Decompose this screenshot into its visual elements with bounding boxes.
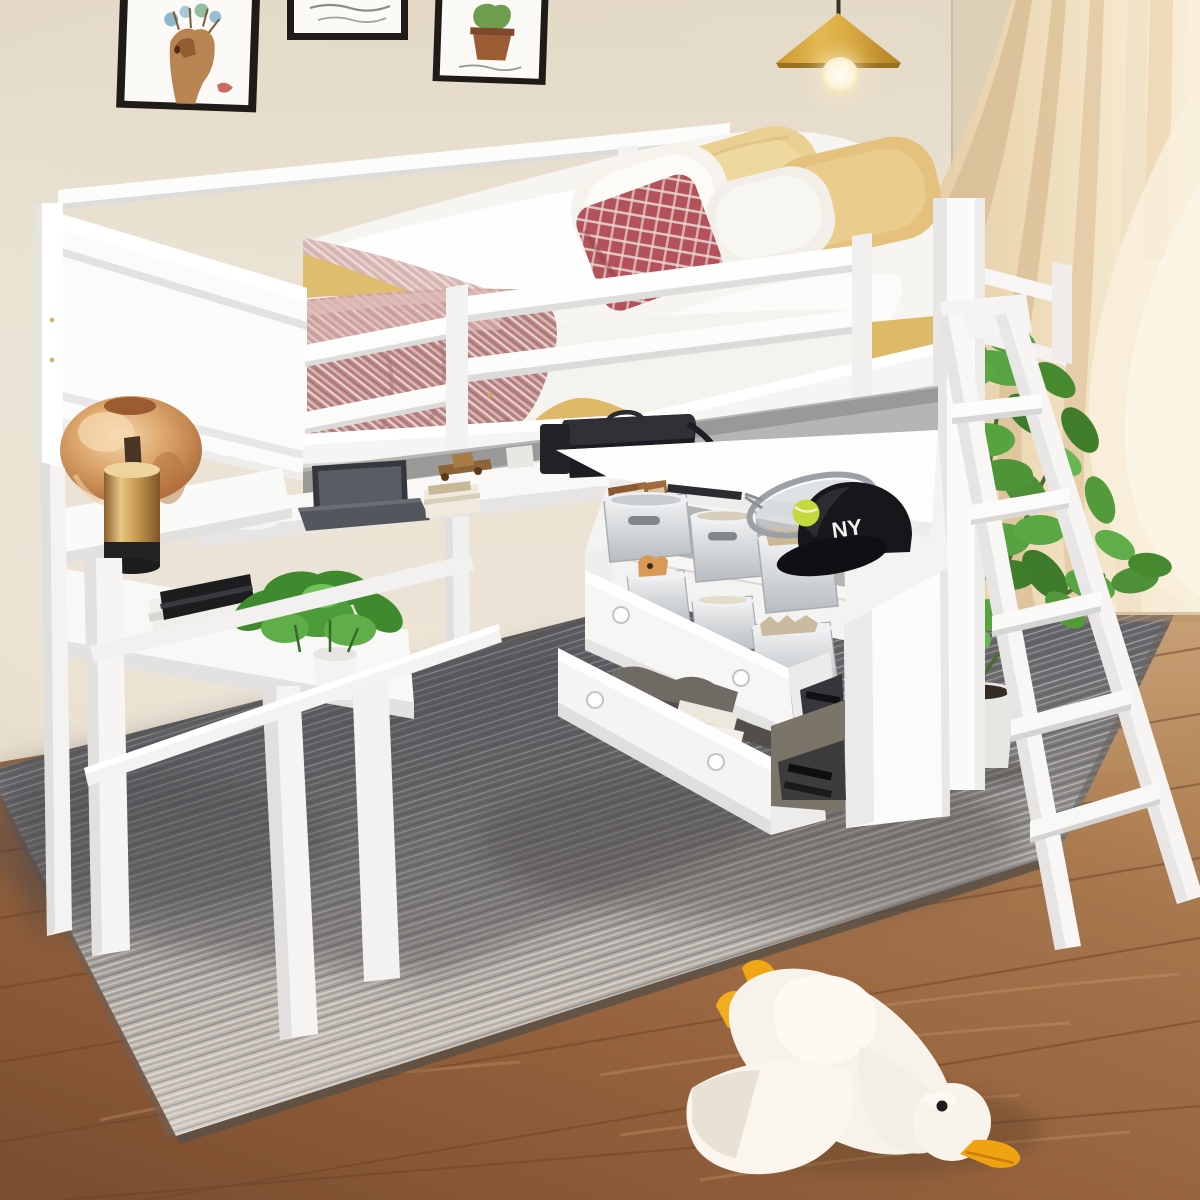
svg-text:NY: NY xyxy=(830,514,864,543)
